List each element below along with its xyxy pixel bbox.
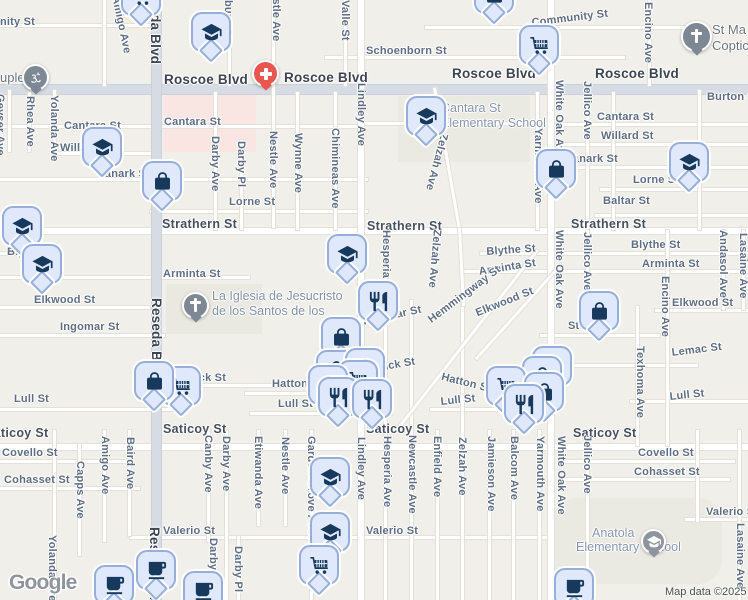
poi-label[interactable]: Anatola xyxy=(592,526,634,540)
street-label: Encino Ave xyxy=(659,276,671,337)
street-label: Lemac St xyxy=(671,341,723,359)
street-label: Lorne St xyxy=(229,196,275,208)
road xyxy=(0,178,368,181)
street-label: Hatton St xyxy=(440,371,492,395)
street-label: nity St xyxy=(0,16,35,28)
street-label: Lasaine Ave xyxy=(734,523,746,589)
restaurant-marker[interactable] xyxy=(352,379,392,419)
road xyxy=(103,0,106,86)
street-label: Schoenborn St xyxy=(366,45,447,57)
street-label: Nestle Ave xyxy=(270,0,282,41)
street-label: Strathern St xyxy=(571,217,646,231)
street-label: Lull St xyxy=(278,398,313,410)
street-label: Zelzah Ave xyxy=(456,437,468,496)
cafe-marker[interactable] xyxy=(94,565,134,600)
street-label: Cohasset St xyxy=(634,466,700,478)
street-label: Ingomar St xyxy=(60,321,119,333)
street-label: Darby Pl xyxy=(232,546,244,592)
poi-label[interactable]: St Ma xyxy=(712,22,746,37)
street-label: Lasaine Ave xyxy=(737,233,748,299)
shopping-bag-marker[interactable] xyxy=(579,291,619,331)
christian-cross-icon xyxy=(188,298,203,313)
street-label: Wynne Ave xyxy=(292,133,304,193)
road xyxy=(8,90,11,152)
street-label: Baird Ave xyxy=(124,437,136,489)
church-poi-icon[interactable] xyxy=(681,21,712,52)
shopping-bag-marker[interactable] xyxy=(134,361,174,401)
school-marker[interactable] xyxy=(2,206,42,246)
street-label: Hesperia Ave xyxy=(381,436,393,507)
street-label: Amigo Ave xyxy=(99,436,111,494)
school-marker[interactable] xyxy=(82,127,122,167)
street-label: Elkwood St xyxy=(34,294,95,306)
restaurant-marker[interactable] xyxy=(504,384,544,424)
street-label: Roscoe Blvd xyxy=(595,66,679,81)
street-label: Saticoy St xyxy=(163,422,226,436)
school-marker[interactable] xyxy=(310,457,350,497)
street-label: Saticoy St xyxy=(0,426,48,440)
school-marker[interactable] xyxy=(669,142,709,182)
hindu-temple-poi-icon[interactable] xyxy=(22,64,49,91)
street-label: Chimineas Ave xyxy=(329,128,341,209)
street-label: Cantara St xyxy=(164,116,221,128)
map-canvas[interactable]: Google Map data ©2025 nity StCommunity S… xyxy=(0,0,748,600)
street-label: Covello St xyxy=(638,447,694,459)
christian-cross-icon xyxy=(689,29,704,44)
street-label: Jamieson Ave xyxy=(485,436,497,512)
street-label: Newcastle Ave xyxy=(406,435,418,514)
street-label: Nestle Ave xyxy=(279,437,291,494)
street-label: Roscoe Blvd xyxy=(164,72,248,87)
street-label: Valerio St xyxy=(366,525,418,537)
street-label: Lull St xyxy=(14,393,49,405)
road xyxy=(0,487,140,490)
street-label: Enfield Ave xyxy=(431,436,443,497)
street-label: Yolanda Ave xyxy=(48,95,60,162)
street-label: Cohasset St xyxy=(4,474,70,486)
road xyxy=(0,306,150,309)
street-label: Rhea Ave xyxy=(24,96,36,147)
road xyxy=(0,85,748,94)
poi-label[interactable]: de los Santos de los xyxy=(212,304,325,318)
poi-label[interactable]: Elementary School xyxy=(441,116,546,130)
street-label: Texhoma Ave xyxy=(634,346,646,418)
street-label: Cantara St xyxy=(597,111,654,123)
grocery-cart-marker[interactable] xyxy=(519,25,559,65)
street-label: Lindley Ave xyxy=(355,83,367,146)
street-label: Jellico Ave xyxy=(581,435,593,494)
street-label: Covello St xyxy=(2,447,58,459)
hospital-poi-icon[interactable] xyxy=(252,60,279,87)
street-label: Balcom Ave xyxy=(508,436,520,500)
street-label: Nestle Ave xyxy=(267,131,279,188)
street-label: Darby Ave xyxy=(209,136,221,191)
cafe-marker[interactable] xyxy=(136,550,176,590)
school-poi-icon[interactable] xyxy=(641,529,666,554)
restaurant-marker[interactable] xyxy=(358,281,398,321)
poi-label[interactable]: uple xyxy=(0,70,25,85)
grocery-cart-marker[interactable] xyxy=(121,0,161,16)
street-label: Darby Pl xyxy=(235,141,247,187)
street-label: Willard St xyxy=(601,130,654,142)
street-label: Arminta St xyxy=(163,268,221,280)
street-label: Strathern St xyxy=(162,217,237,231)
street-label: Valle St xyxy=(339,0,351,41)
street-label: Valerio St xyxy=(706,506,748,518)
school-marker[interactable] xyxy=(406,96,446,136)
school-marker[interactable] xyxy=(191,12,231,52)
church-poi-icon[interactable] xyxy=(182,292,209,319)
street-label: Capps Ave xyxy=(74,461,86,519)
shopping-bag-marker[interactable] xyxy=(536,149,576,189)
street-label: Elkwood St xyxy=(672,297,733,309)
street-label: Etiwanda Ave xyxy=(252,436,264,509)
street-label: White Oak Ave xyxy=(553,230,565,309)
street-label: White Oak Ave xyxy=(553,80,565,159)
shopping-bag-marker[interactable] xyxy=(474,0,514,14)
road xyxy=(425,26,697,29)
street-label: Burton St xyxy=(707,91,748,103)
street-label: Lindley Ave xyxy=(355,437,367,500)
google-logo[interactable]: Google xyxy=(9,571,77,595)
street-label: Baltar St xyxy=(603,195,650,207)
road xyxy=(0,334,165,337)
shopping-bag-marker[interactable] xyxy=(142,161,182,201)
map-data-attribution: Map data ©2025 xyxy=(665,586,747,598)
poi-label[interactable]: La Iglesia de Jesucristo xyxy=(212,289,343,303)
cafe-marker[interactable] xyxy=(183,571,223,600)
street-label: Lull St xyxy=(440,392,476,408)
road xyxy=(556,143,748,146)
street-label: Andasol Ave xyxy=(717,230,729,298)
street-label: Yarmouth Ave xyxy=(534,436,546,512)
street-label: Zelzah Ave xyxy=(426,229,443,288)
street-label: Darby Ave xyxy=(220,436,232,491)
grocery-cart-marker[interactable] xyxy=(299,545,339,585)
street-label: Blythe St xyxy=(486,243,536,258)
street-label: Encino Ave xyxy=(642,2,654,63)
street-label: Jellico Ave xyxy=(581,81,593,140)
street-label: Canby Ave xyxy=(202,435,214,493)
cafe-marker[interactable] xyxy=(554,568,594,600)
street-label: Blythe St xyxy=(631,239,680,251)
street-label: Arminta St xyxy=(642,258,700,270)
school-marker[interactable] xyxy=(327,234,367,274)
medical-cross-icon xyxy=(259,67,273,81)
street-label: Valerio St xyxy=(163,525,215,537)
street-label: Jellico Ave xyxy=(581,232,593,291)
poi-label[interactable]: Cantara St xyxy=(441,101,501,115)
street-label: White Oak Ave xyxy=(555,436,567,515)
road xyxy=(550,364,698,367)
road xyxy=(600,188,748,191)
street-label: Geyser Ave xyxy=(0,94,6,156)
poi-label[interactable]: Coptic xyxy=(712,38,748,53)
school-marker[interactable] xyxy=(22,244,62,284)
street-label: Roscoe Blvd xyxy=(452,66,536,81)
